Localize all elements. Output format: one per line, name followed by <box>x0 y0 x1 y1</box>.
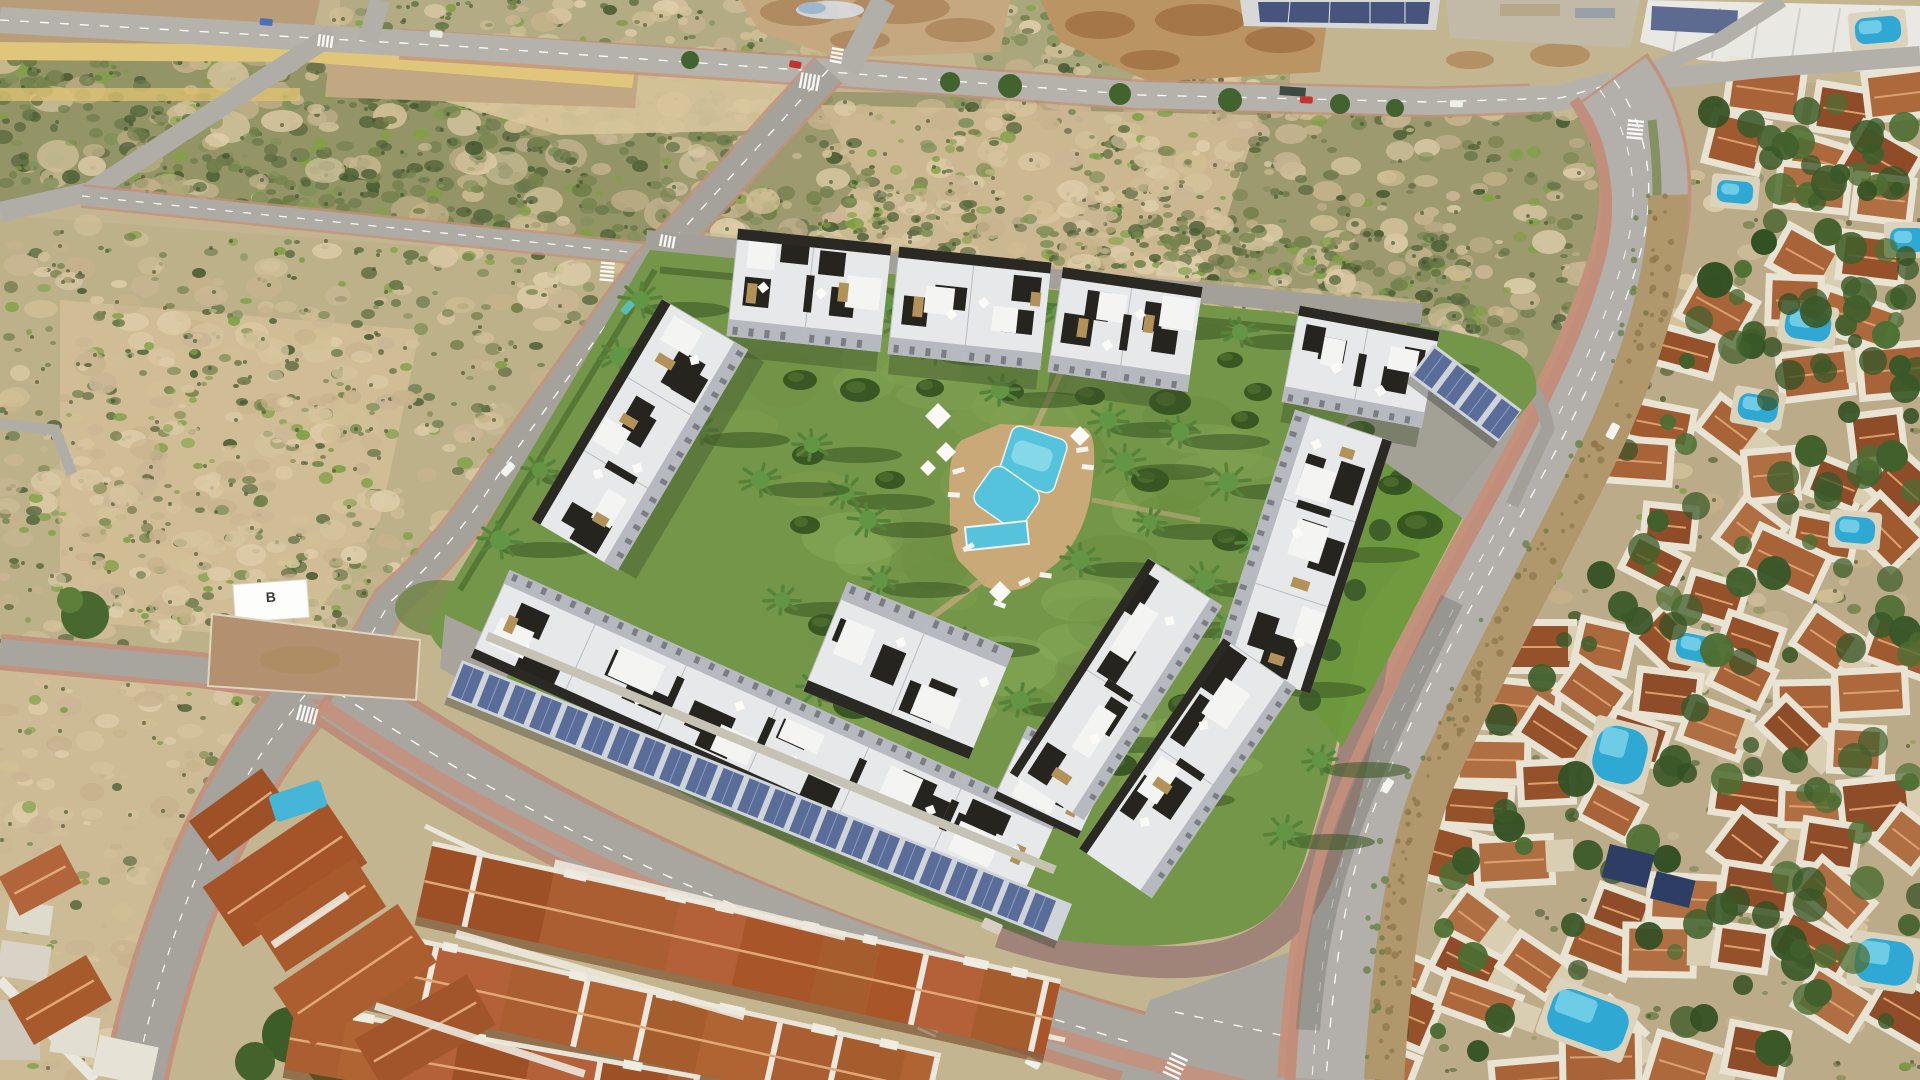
svg-text:B: B <box>265 589 276 606</box>
